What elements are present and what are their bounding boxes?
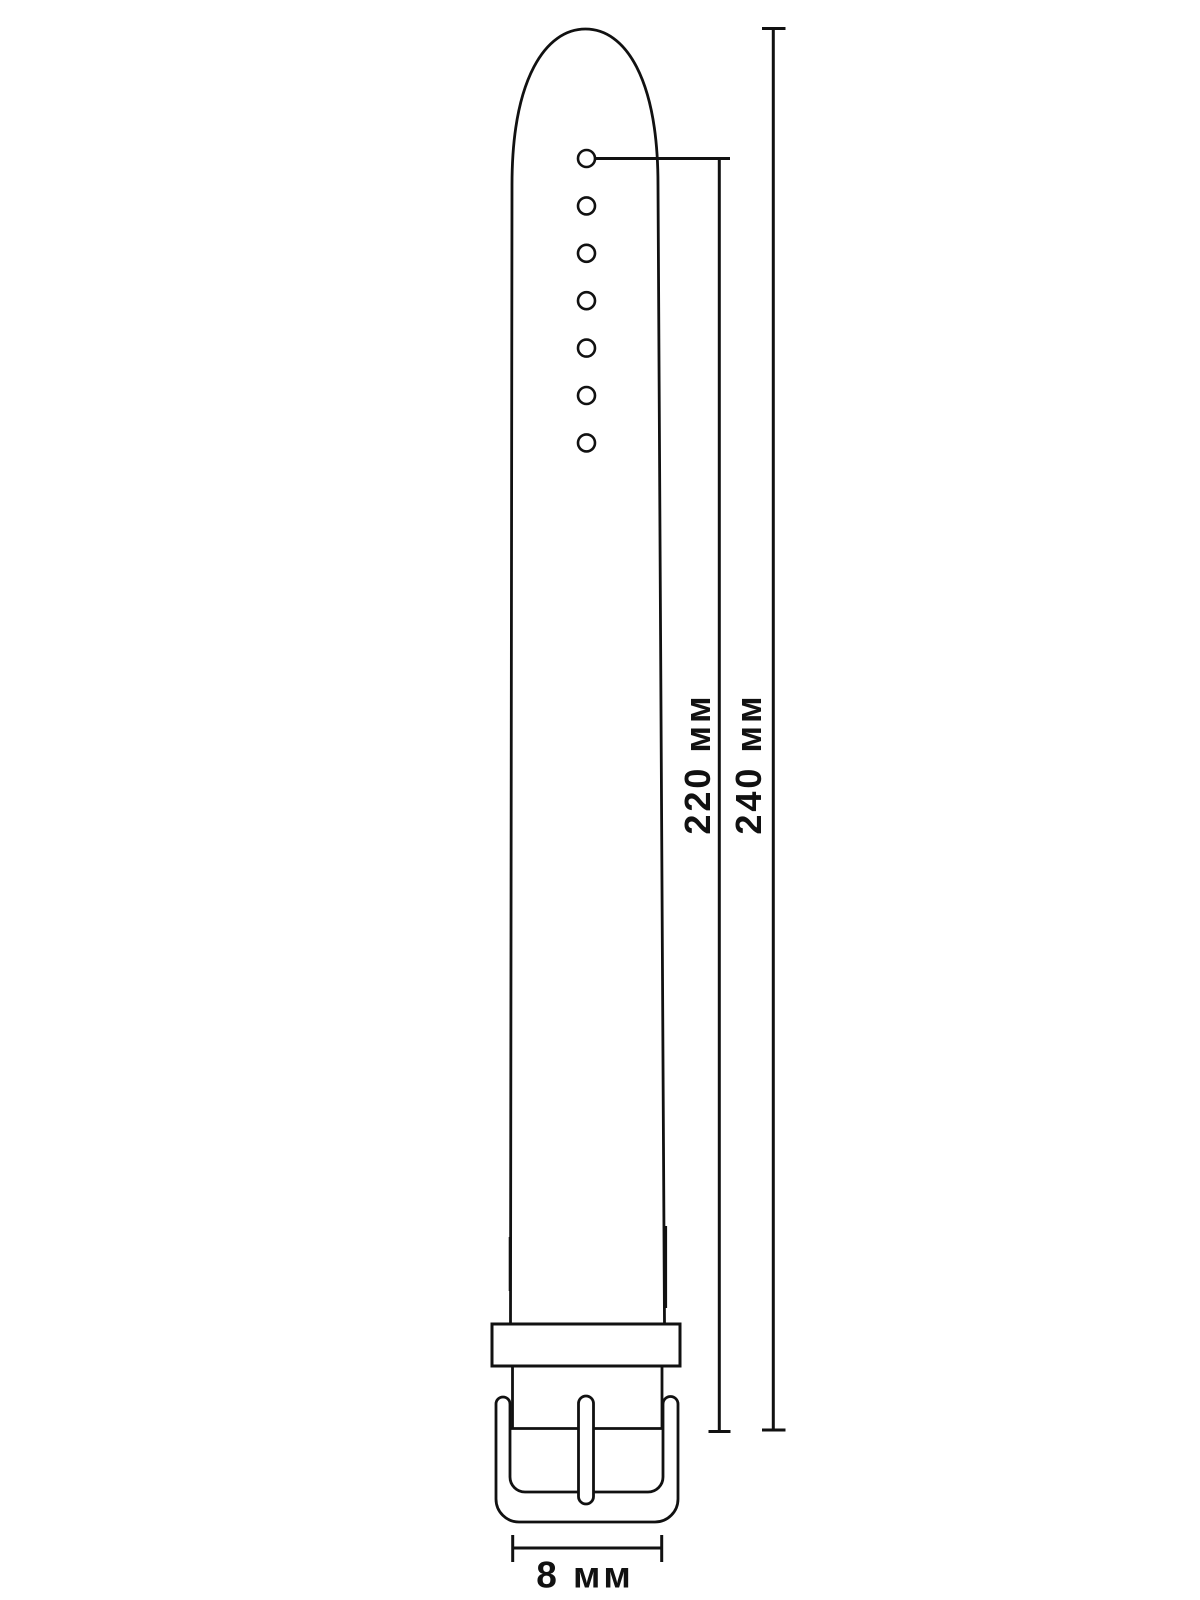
dimension-label-240: 240 мм xyxy=(731,693,767,834)
strap-dimension-diagram: 220 мм 240 мм 8 мм xyxy=(0,0,1200,1600)
strap-keeper xyxy=(492,1324,680,1366)
strap-line-drawing xyxy=(0,0,1200,1600)
buckle-prong xyxy=(579,1396,594,1504)
strap-hole xyxy=(578,292,595,309)
strap-hole xyxy=(578,340,595,357)
dimension-label-220: 220 мм xyxy=(680,693,716,834)
strap-hole xyxy=(578,150,595,167)
strap-outline xyxy=(511,29,665,1324)
strap-hole xyxy=(578,434,595,451)
strap-hole xyxy=(578,387,595,404)
strap-hole xyxy=(578,197,595,214)
dimension-label-8: 8 мм xyxy=(536,1557,634,1594)
strap-hole xyxy=(578,245,595,262)
